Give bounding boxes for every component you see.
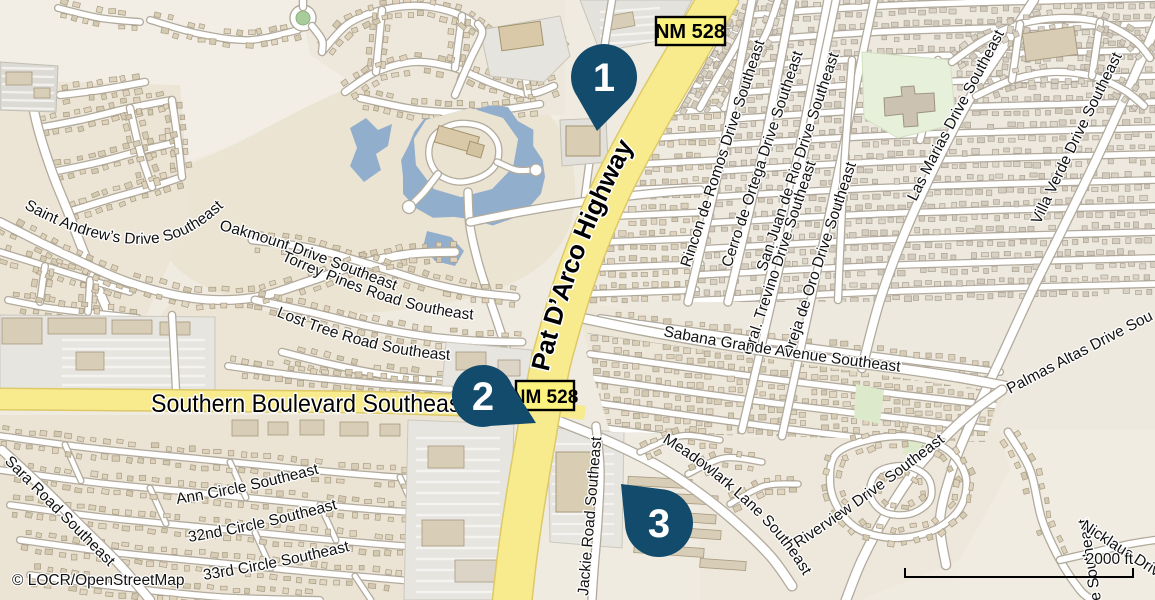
svg-text:Southern Boulevard Southeast: Southern Boulevard Southeast [151, 390, 467, 418]
svg-text:© LOCR/OpenStreetMap: © LOCR/OpenStreetMap [12, 572, 185, 589]
svg-text:1: 1 [593, 56, 615, 100]
svg-text:2: 2 [472, 375, 494, 419]
svg-text:2000 ft: 2000 ft [1086, 551, 1134, 568]
svg-text:NM 528: NM 528 [655, 21, 725, 43]
svg-text:3: 3 [648, 502, 670, 546]
